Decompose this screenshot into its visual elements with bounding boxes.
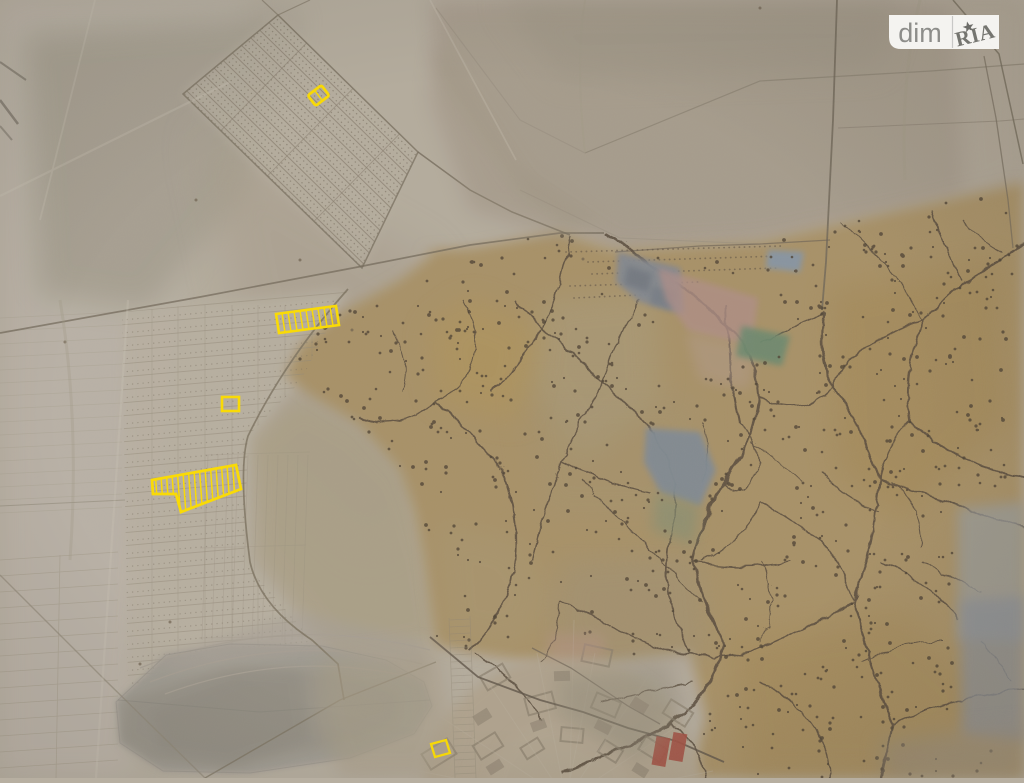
svg-text:dim: dim bbox=[898, 18, 942, 48]
